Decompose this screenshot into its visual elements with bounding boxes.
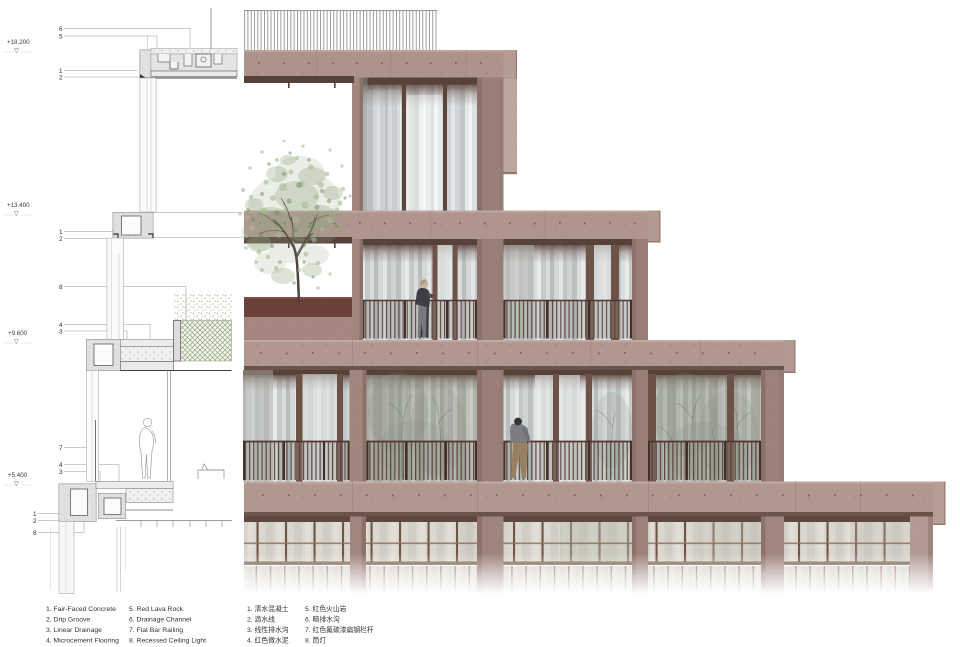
svg-text:8: 8 — [59, 284, 63, 291]
svg-text:7. Flat Bar Railing: 7. Flat Bar Railing — [129, 627, 183, 634]
svg-text:+13.400: +13.400 — [7, 202, 30, 209]
svg-text:2. 滴水线: 2. 滴水线 — [247, 615, 275, 624]
svg-text:4. 红色微水泥: 4. 红色微水泥 — [247, 636, 289, 645]
svg-text:+5.400: +5.400 — [8, 472, 28, 479]
svg-text:3. Linear Drainage: 3. Linear Drainage — [46, 627, 102, 634]
svg-text:2: 2 — [59, 236, 63, 243]
svg-text:4: 4 — [59, 462, 63, 469]
svg-text:▽: ▽ — [14, 340, 19, 346]
svg-text:▽: ▽ — [14, 212, 19, 218]
svg-text:5. Red Lava Rock: 5. Red Lava Rock — [129, 606, 184, 613]
svg-text:6: 6 — [59, 26, 63, 33]
svg-text:7. 红色氟碳漆扁钢栏杆: 7. 红色氟碳漆扁钢栏杆 — [305, 625, 374, 634]
svg-text:▽: ▽ — [14, 49, 19, 55]
svg-text:1. 清水混凝土: 1. 清水混凝土 — [247, 604, 289, 613]
svg-text:8: 8 — [33, 530, 37, 537]
svg-text:1: 1 — [59, 229, 63, 236]
svg-text:1: 1 — [33, 511, 37, 518]
svg-text:2. Drip Groove: 2. Drip Groove — [46, 617, 90, 624]
svg-text:1. Fair-Faced Concrete: 1. Fair-Faced Concrete — [46, 606, 116, 613]
svg-text:+9.600: +9.600 — [8, 330, 28, 337]
svg-text:2: 2 — [33, 518, 37, 525]
svg-text:7: 7 — [59, 445, 63, 452]
svg-text:8. 筒灯: 8. 筒灯 — [305, 636, 326, 645]
svg-text:6. Drainage Channel: 6. Drainage Channel — [129, 617, 192, 624]
svg-text:3: 3 — [59, 329, 63, 336]
svg-text:3: 3 — [59, 469, 63, 476]
svg-text:+18.200: +18.200 — [7, 39, 30, 46]
svg-text:▽: ▽ — [14, 482, 19, 488]
svg-text:6. 暗排水沟: 6. 暗排水沟 — [305, 615, 340, 624]
svg-text:5: 5 — [59, 34, 63, 41]
svg-text:4. Microcement Flooring: 4. Microcement Flooring — [46, 638, 119, 645]
svg-text:5. 红色火山岩: 5. 红色火山岩 — [305, 604, 347, 613]
svg-text:3. 线性排水沟: 3. 线性排水沟 — [247, 625, 289, 634]
svg-text:8. Recessed Ceiling Light: 8. Recessed Ceiling Light — [129, 638, 206, 645]
svg-text:2: 2 — [59, 75, 63, 82]
